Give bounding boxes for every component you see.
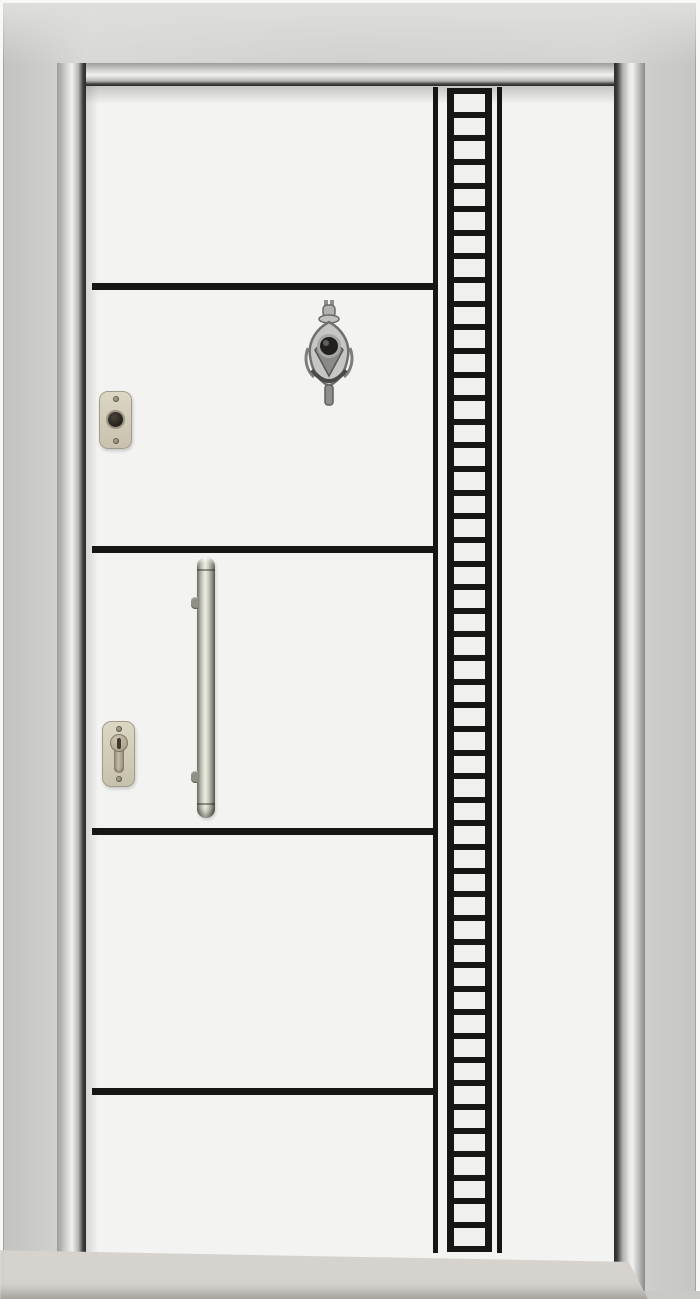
security-door-photo [0,0,700,1299]
ladder-rung [454,1175,485,1181]
deadbolt-cylinder-plate [99,391,132,449]
ladder-rung [454,1151,485,1157]
key-cylinder-plate [102,721,135,787]
vertical-groove-left [433,87,438,1253]
door-leaf [86,86,614,1299]
ladder-rung [454,419,485,425]
vertical-groove-right [497,87,502,1253]
ladder-rung [454,939,485,945]
ladder-rung [454,891,485,897]
panel-groove-1 [92,283,437,290]
ladder-rung [454,301,485,307]
screw-icon [116,776,122,782]
vertical-pull-handle [197,557,215,818]
ladder-rung [454,395,485,401]
ladder-rung [454,1222,485,1228]
handle-cap-ring [197,803,215,805]
frame-molding-top [57,63,645,86]
ladder-rung [454,230,485,236]
ladder-rung [454,915,485,921]
ladder-rung [454,183,485,189]
ladder-rung [454,1009,485,1015]
ladder-rung [454,986,485,992]
ladder-rung [454,490,485,496]
euro-cylinder-keyhole-icon [110,734,128,774]
ladder-rung [454,820,485,826]
ladder-rung [454,513,485,519]
ladder-rung [454,1057,485,1063]
ladder-rung [454,702,485,708]
ladder-rung [454,962,485,968]
panel-groove-4 [92,1088,437,1095]
screw-icon [113,438,119,444]
handle-standoff [191,597,198,609]
ladder-rung [454,112,485,118]
ladder-rung [454,773,485,779]
ladder-rung [454,537,485,543]
ladder-rung [454,726,485,732]
door-knocker-peephole-icon [301,298,357,410]
handle-cap-ring [197,569,215,571]
ladder-rung [454,135,485,141]
panel-groove-2 [92,546,437,553]
ladder-rung [454,1104,485,1110]
handle-standoff [191,771,198,783]
ladder-rung [454,1198,485,1204]
ladder-rung [454,797,485,803]
frame-molding-right [614,63,645,1299]
ladder-rung [454,1080,485,1086]
ladder-rung [454,561,485,567]
ladder-rung [454,372,485,378]
leaf-left-shadow [86,86,98,1299]
leaf-top-shadow [86,86,614,104]
ladder-rung [454,1128,485,1134]
screw-icon [116,726,122,732]
ladder-rung [454,631,485,637]
ladder-rung [454,608,485,614]
ladder-rung [454,679,485,685]
ladder-rung [454,868,485,874]
ladder-rung [454,253,485,259]
ladder-rung [454,466,485,472]
cylinder-bore [108,412,123,427]
ladder-rung [454,324,485,330]
ladder-rung [454,844,485,850]
ladder-inlay [447,88,492,1252]
ladder-rung [454,88,485,94]
ladder-rung [454,750,485,756]
ladder-rung [454,348,485,354]
ladder-rung [454,1033,485,1039]
ladder-rung [454,206,485,212]
ladder-rung [454,442,485,448]
panel-groove-3 [92,828,437,835]
ladder-rung [454,655,485,661]
ladder-rung [454,277,485,283]
screw-icon [113,396,119,402]
ladder-rung [454,159,485,165]
frame-molding-left [57,63,86,1299]
ladder-rung [454,584,485,590]
ladder-rung [454,1246,485,1252]
